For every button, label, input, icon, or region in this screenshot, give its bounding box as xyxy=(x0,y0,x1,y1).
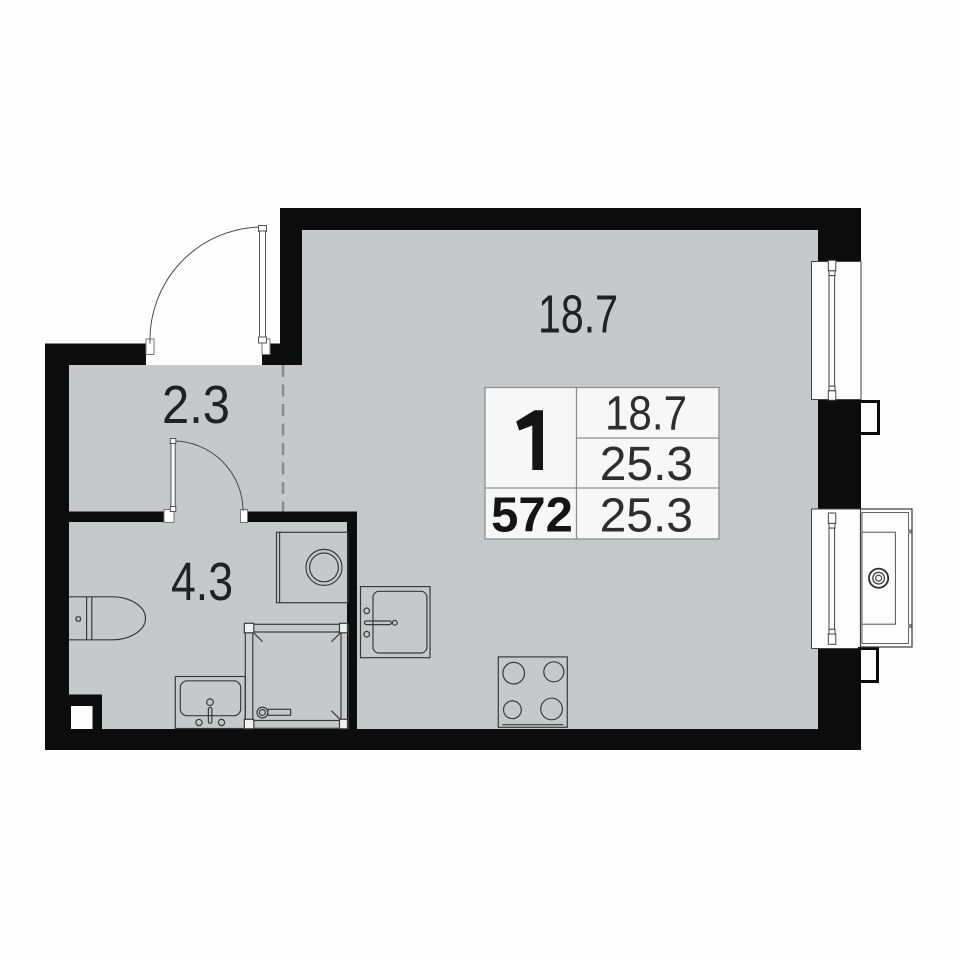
svg-text:4.3: 4.3 xyxy=(171,552,233,612)
svg-text:18.7: 18.7 xyxy=(605,388,687,441)
svg-text:2.3: 2.3 xyxy=(162,375,230,435)
svg-text:572: 572 xyxy=(491,488,573,542)
svg-text:18.7: 18.7 xyxy=(538,285,618,345)
svg-text:25.3: 25.3 xyxy=(600,438,693,491)
svg-text:25.3: 25.3 xyxy=(600,489,693,542)
